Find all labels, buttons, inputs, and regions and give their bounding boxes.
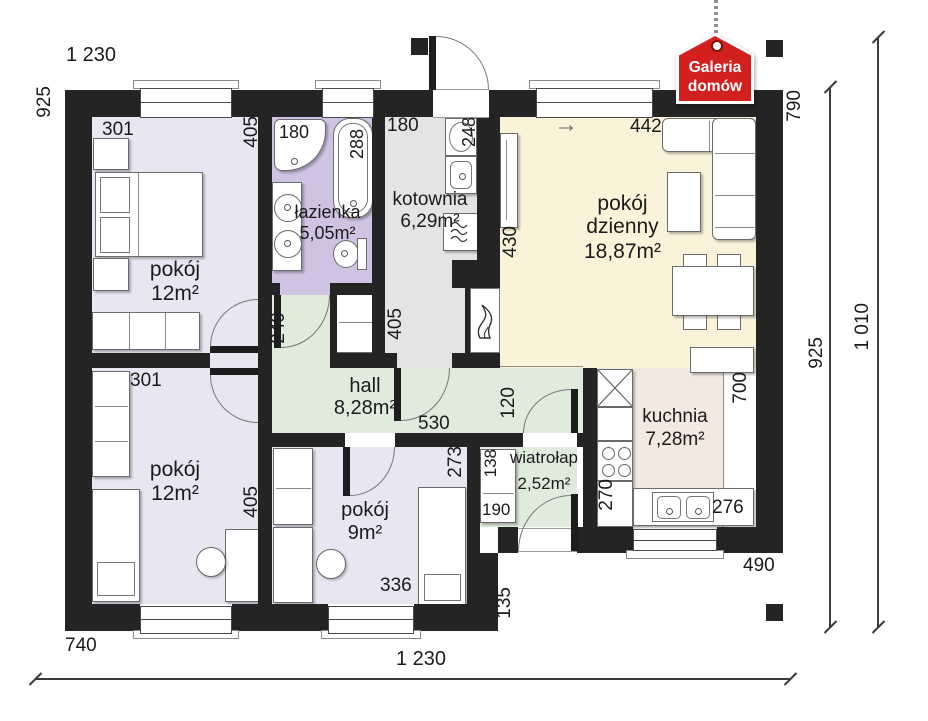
chair xyxy=(196,547,226,577)
room-area: 2,52m² xyxy=(506,475,582,493)
room-label: kuchnia xyxy=(630,407,720,428)
logo-grommet xyxy=(711,40,723,52)
door-leaf xyxy=(343,447,350,496)
room-label: pokój xyxy=(560,193,685,216)
dim-label: 925 xyxy=(806,337,828,369)
corner-marker xyxy=(766,604,783,621)
wall-segment xyxy=(395,433,523,447)
pillow xyxy=(424,574,461,601)
dim-label: 301 xyxy=(130,370,162,392)
wall-segment xyxy=(498,527,518,553)
kitchen-counter xyxy=(597,407,633,441)
wall-segment xyxy=(452,353,500,368)
wall-segment xyxy=(583,368,597,527)
threshold-line xyxy=(500,366,583,367)
dining-table xyxy=(672,266,754,316)
direction-arrow: → xyxy=(554,111,578,139)
dim-label: 301 xyxy=(102,119,134,141)
wall-segment xyxy=(489,90,536,117)
logo-text-line2: domów xyxy=(676,78,754,96)
wall-segment xyxy=(452,260,500,288)
window xyxy=(322,88,374,118)
logo-badge: Galeria domów xyxy=(676,33,754,104)
dim-label: 1 230 xyxy=(66,44,116,67)
room-label: dzienny xyxy=(560,216,685,239)
window xyxy=(633,529,717,551)
wall-segment xyxy=(717,527,783,553)
wall-segment xyxy=(477,117,500,260)
room-area: 7,28m² xyxy=(630,430,720,451)
door-swing-arc xyxy=(436,36,489,90)
door-leaf xyxy=(429,36,436,90)
dim-label: 180 xyxy=(387,115,419,137)
desk xyxy=(273,448,313,525)
room-label: pokój xyxy=(115,259,235,282)
room-label: kotownia xyxy=(380,190,480,211)
dim-label: 1 010 xyxy=(852,303,874,351)
wall-segment xyxy=(232,604,328,631)
door-leaf xyxy=(571,389,578,433)
dim-label: 530 xyxy=(418,413,450,435)
dim-label: 138 xyxy=(481,449,501,477)
corner-marker xyxy=(411,38,428,55)
room-label: pokój xyxy=(330,500,400,522)
room-area: 8,28m² xyxy=(310,398,420,420)
dim-label: 925 xyxy=(34,86,56,118)
dim-label: 405 xyxy=(241,486,263,518)
bed xyxy=(95,172,203,257)
room-label: łazienka xyxy=(270,203,385,222)
wardrobe xyxy=(92,312,200,350)
bed xyxy=(92,489,140,602)
wall-segment xyxy=(272,283,280,295)
dim-label: 135 xyxy=(494,587,516,619)
burner xyxy=(618,464,631,477)
door-leaf xyxy=(210,368,258,375)
sofa-side-section xyxy=(712,118,756,240)
dim-label: 270 xyxy=(596,479,618,511)
dim-label: 700 xyxy=(730,372,752,404)
dim-label: 336 xyxy=(380,575,412,597)
room-area: 5,05m² xyxy=(270,224,385,243)
room-area: 12m² xyxy=(115,283,235,306)
wall-segment xyxy=(65,353,210,368)
fridge-x-icon xyxy=(597,369,633,407)
dim-label: 405 xyxy=(241,116,263,148)
wall-segment xyxy=(335,353,397,368)
door-leaf xyxy=(210,346,258,353)
window xyxy=(328,606,414,634)
floor-plan: pokój 12m² łazienka 5,05m² kotownia 6,29… xyxy=(0,0,928,721)
dim-label: 442 xyxy=(630,116,662,138)
dim-label: 430 xyxy=(500,226,522,258)
dim-label: 790 xyxy=(784,90,806,122)
dimension-line xyxy=(35,678,790,680)
bed-line xyxy=(138,173,139,256)
dim-label: 273 xyxy=(445,446,467,478)
wall-segment xyxy=(258,117,272,631)
wall-segment xyxy=(414,604,498,631)
dim-label: 288 xyxy=(347,129,368,159)
dim-label: 120 xyxy=(498,387,520,419)
wall-segment xyxy=(65,604,140,631)
kitchen-sink xyxy=(652,492,714,522)
corner-marker xyxy=(766,40,783,57)
pillow xyxy=(100,217,130,253)
pillow xyxy=(100,177,130,213)
window xyxy=(140,606,232,634)
dim-label: 180 xyxy=(279,122,309,143)
tv-cabinet xyxy=(500,133,518,228)
room-area: 9m² xyxy=(330,523,400,545)
bed xyxy=(418,487,466,605)
nightstand xyxy=(93,138,129,170)
wall-segment xyxy=(465,288,470,353)
logo-chain xyxy=(714,0,718,34)
shower-drain xyxy=(291,158,298,165)
pillow xyxy=(97,562,135,596)
wall-segment xyxy=(374,90,433,117)
door-leaf xyxy=(571,494,578,551)
dim-label: 190 xyxy=(482,500,510,520)
dim-label: 1 230 xyxy=(396,648,446,671)
dim-label: 405 xyxy=(385,308,407,340)
dim-label: 276 xyxy=(712,497,744,519)
dim-label: 490 xyxy=(743,555,775,577)
room-area: 6,29m² xyxy=(380,212,480,233)
wall-segment xyxy=(262,433,345,447)
dimension-line xyxy=(829,87,831,627)
dim-label: 248 xyxy=(459,117,480,147)
fireplace-icon xyxy=(472,300,498,342)
room-area: 18,87m² xyxy=(560,241,685,264)
window xyxy=(140,88,232,118)
logo-text-line1: Galeria xyxy=(676,59,754,77)
burner xyxy=(602,464,615,477)
sideboard xyxy=(690,347,754,373)
dim-label: 249 xyxy=(268,312,290,344)
door-opening xyxy=(433,89,489,118)
room-label: wiatrołap xyxy=(503,449,585,467)
dresser xyxy=(273,527,313,603)
wall-segment xyxy=(232,90,322,117)
hall-wardrobe xyxy=(336,293,377,353)
room-label: hall xyxy=(320,376,410,398)
room-label: pokój xyxy=(115,459,235,482)
dim-label: 740 xyxy=(65,635,97,657)
window-sill xyxy=(626,550,724,559)
wall-segment xyxy=(756,90,783,553)
dimension-line xyxy=(877,37,879,627)
burner xyxy=(602,447,615,460)
room-area: 12m² xyxy=(115,483,235,506)
wall-segment xyxy=(467,433,480,604)
toilet-drain xyxy=(341,250,348,257)
chair xyxy=(316,549,346,579)
